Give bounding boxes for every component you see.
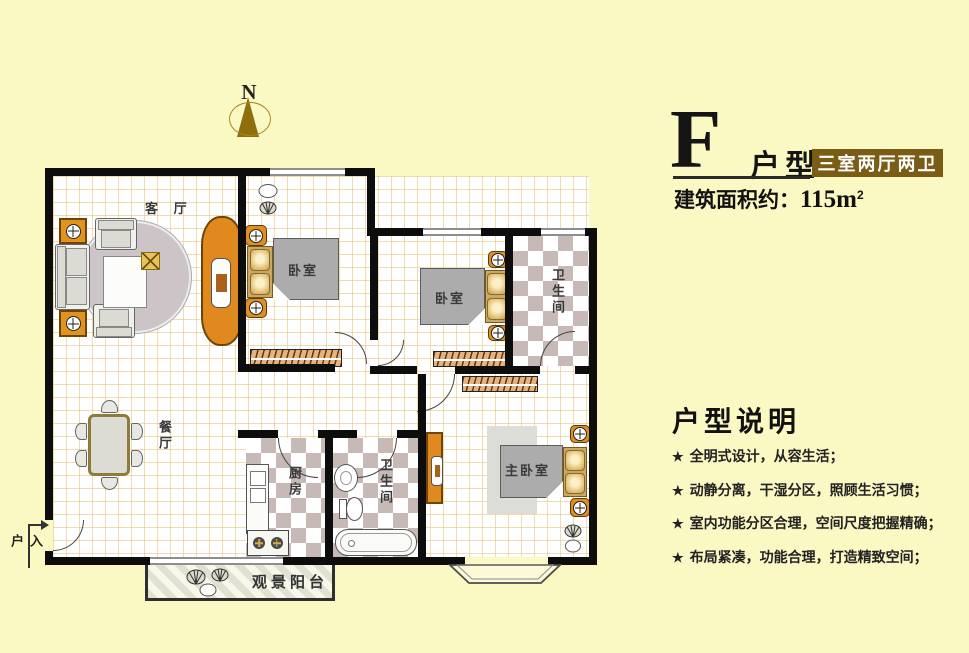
tv-cabinet (426, 432, 443, 504)
plant-icon (561, 524, 585, 554)
area-value: 115m (800, 186, 857, 213)
description-item: ★全明式设计，从容生活； (672, 447, 942, 467)
bedroom2-label: 卧室 (435, 288, 465, 307)
description-text: 室内功能分区合理，空间尺度把握精确； (690, 514, 942, 534)
bathroom2-label: 卫生间 (376, 458, 395, 506)
area-exponent: 2 (857, 188, 864, 202)
wall (238, 168, 246, 372)
window (150, 557, 283, 565)
bed-headboard (563, 447, 587, 497)
blanket-fold (273, 283, 290, 300)
living-room-label: 客 厅 (145, 198, 193, 217)
wall (325, 438, 333, 557)
window (270, 168, 345, 176)
description-item: ★动静分离，干湿分区，照顾生活习惯； (672, 481, 942, 501)
blanket-fold (546, 481, 563, 498)
description-text: 动静分离，干湿分区，照顾生活习惯； (690, 481, 928, 501)
wall (318, 430, 357, 438)
burner-icon (253, 537, 265, 549)
description-text: 布局紧凑，功能合理，打造精致空间； (690, 548, 928, 568)
pillow (250, 249, 271, 271)
description-list: ★全明式设计，从容生活； ★动静分离，干湿分区，照顾生活习惯； ★室内功能分区合… (672, 447, 942, 567)
toilet-bowl (346, 497, 363, 521)
decor-table (141, 252, 160, 270)
bay-window (448, 564, 562, 586)
pillow (565, 473, 584, 494)
description-item: ★室内功能分区合理，空间尺度把握精确； (672, 514, 942, 534)
nightstand (570, 425, 590, 443)
pillow (565, 450, 584, 471)
plant-icon (184, 567, 238, 597)
stove (247, 530, 289, 556)
wall (45, 551, 53, 565)
floorplan: 观景阳台 入户 客 厅 卧室 卧室 卫生间 餐厅 厨房 卫生间 主卧室 (45, 168, 597, 565)
wardrobe (462, 376, 538, 392)
armchair (95, 218, 137, 250)
wall (367, 168, 375, 236)
lamp-icon (249, 301, 263, 315)
armchair (93, 304, 135, 338)
dining-chair (131, 423, 143, 440)
bed-headboard (247, 246, 273, 298)
lamp-icon (573, 501, 587, 515)
lamp-icon (573, 427, 587, 441)
wall (370, 236, 378, 340)
burner-icon (271, 537, 283, 549)
side-table (59, 310, 87, 337)
description-item: ★布局紧凑，功能合理，打造精致空间； (672, 548, 942, 568)
pillow (487, 273, 506, 295)
dining-table (88, 414, 130, 476)
entrance-arrow-icon (41, 520, 49, 530)
wall (589, 228, 597, 565)
area-label: 建筑面积约： (674, 189, 800, 212)
unit-type-letter: F (670, 98, 721, 182)
bathroom1-label: 卫生间 (548, 268, 567, 316)
window (541, 228, 585, 236)
washbasin (334, 464, 358, 492)
floorplan-page: { "header": { "type_letter": "F", "type_… (0, 0, 969, 653)
lamp-icon (66, 316, 81, 331)
star-icon: ★ (672, 515, 684, 534)
lamp-icon (249, 229, 263, 243)
bedroom1-label: 卧室 (288, 260, 318, 279)
kitchen-label: 厨房 (285, 466, 304, 498)
wall (505, 236, 513, 366)
dining-chair (75, 450, 87, 467)
lamp-icon (491, 326, 505, 340)
star-icon: ★ (672, 448, 684, 467)
wall (418, 374, 426, 557)
balcony: 观景阳台 (145, 565, 335, 601)
entrance-label: 入户 (7, 534, 45, 565)
wall (238, 430, 278, 438)
description-text: 全明式设计，从容生活； (690, 447, 844, 467)
pillow (250, 273, 271, 295)
lamp-icon (66, 224, 81, 239)
plant-icon (255, 184, 281, 218)
nightstand (245, 298, 267, 318)
wall (575, 366, 597, 374)
description-title: 户型说明 (672, 400, 800, 440)
floor-area: 建筑面积约：115m2 (674, 184, 864, 214)
dining-chair (75, 423, 87, 440)
blanket-fold (468, 308, 485, 325)
wall (397, 430, 418, 438)
balcony-label: 观景阳台 (252, 571, 328, 592)
toilet (339, 495, 363, 523)
window (423, 228, 481, 236)
wall (238, 364, 335, 372)
kitchen-counter (246, 464, 269, 534)
master-bedroom-label: 主卧室 (505, 460, 550, 479)
title-underline (673, 176, 810, 179)
north-indicator: N (225, 80, 273, 156)
layout-badge: 三室两厅两卫 (812, 149, 943, 177)
star-icon: ★ (672, 549, 684, 568)
north-ring (229, 102, 271, 136)
nightstand (245, 225, 267, 246)
side-table (59, 218, 87, 244)
sofa (55, 244, 90, 310)
nightstand (570, 498, 590, 517)
dining-room-label: 餐厅 (155, 420, 174, 452)
wardrobe (433, 351, 508, 367)
dining-chair (131, 450, 143, 467)
wall (370, 366, 417, 374)
lamp-icon (491, 253, 505, 267)
wall (45, 168, 53, 520)
dining-chair (101, 400, 118, 413)
pillow (487, 298, 506, 320)
bathtub (335, 529, 417, 556)
wall (455, 366, 540, 374)
star-icon: ★ (672, 482, 684, 501)
tv-cabinet (201, 216, 243, 346)
